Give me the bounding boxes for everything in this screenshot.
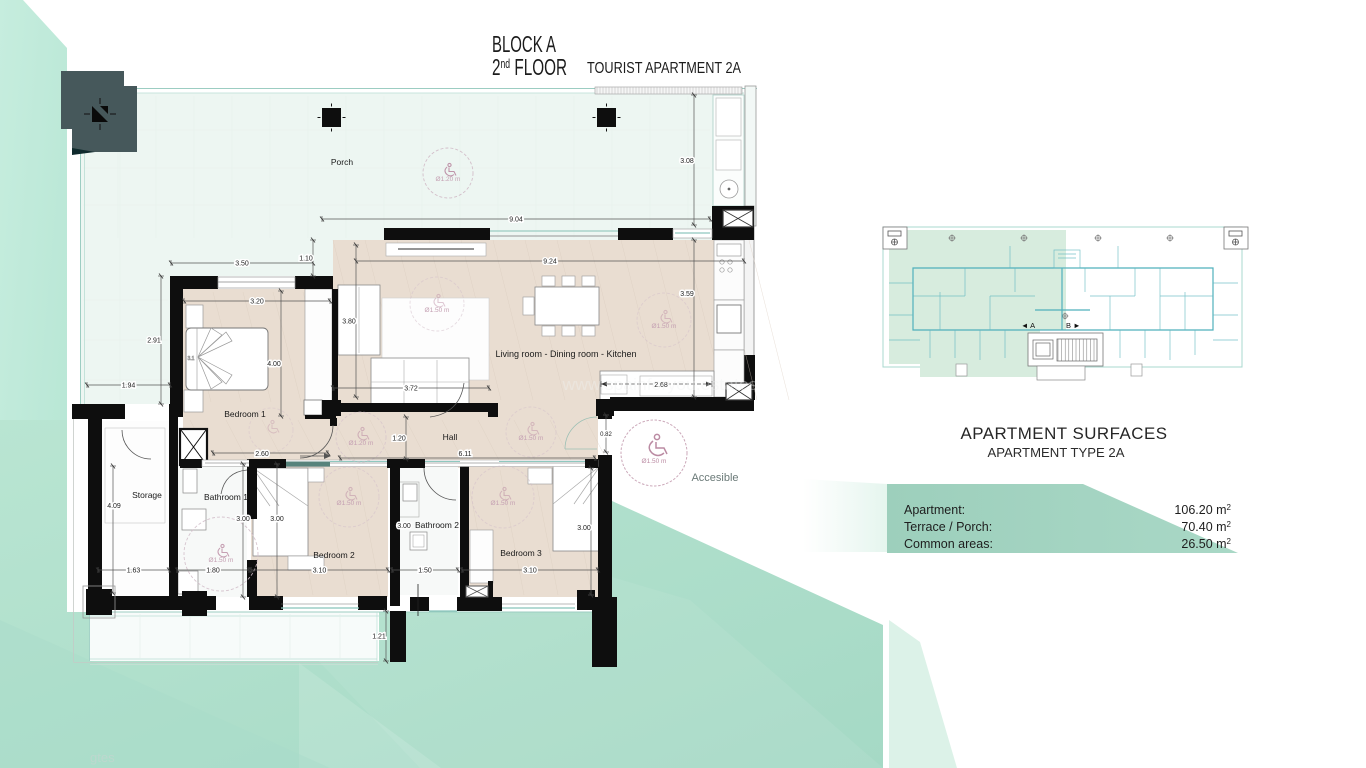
svg-text:Ø1.50 m: Ø1.50 m (209, 557, 234, 564)
svg-text:3.50: 3.50 (235, 261, 249, 268)
svg-text:4.09: 4.09 (107, 503, 121, 510)
svg-text:9.24: 9.24 (543, 259, 557, 266)
svg-text:1.21: 1.21 (372, 634, 386, 641)
svg-text:1.20: 1.20 (392, 436, 406, 443)
svg-text:4.00: 4.00 (267, 361, 281, 368)
svg-text:Porch: Porch (331, 157, 353, 167)
svg-text:3.00: 3.00 (236, 516, 250, 523)
svg-text:Storage: Storage (132, 490, 162, 500)
svg-text:Ø1.50 m: Ø1.50 m (491, 500, 516, 507)
svg-text:1.80: 1.80 (206, 568, 220, 575)
svg-text:Hall: Hall (443, 432, 458, 442)
svg-text:3.72: 3.72 (404, 386, 418, 393)
svg-text:Bedroom 1: Bedroom 1 (224, 409, 266, 419)
svg-text:1.94: 1.94 (122, 383, 136, 390)
svg-text:gtes: gtes (90, 750, 115, 765)
svg-text:Ø1.20 m: Ø1.20 m (349, 440, 374, 447)
svg-text:2.60: 2.60 (255, 451, 269, 458)
svg-text:3.08: 3.08 (680, 158, 694, 165)
svg-text:2.91: 2.91 (147, 338, 161, 345)
svg-text:Ø1.50 m: Ø1.50 m (642, 458, 667, 465)
svg-text:6.11: 6.11 (458, 451, 471, 458)
svg-text:1.10: 1.10 (299, 256, 313, 263)
svg-text:TOURIST APARTMENT 2A: TOURIST APARTMENT 2A (587, 60, 742, 77)
svg-text:0.82: 0.82 (600, 432, 612, 438)
svg-text:3.00: 3.00 (577, 525, 591, 532)
svg-text:3.10: 3.10 (313, 568, 327, 575)
svg-text:3.00: 3.00 (397, 523, 411, 530)
svg-text:Living room - Dining room - Ki: Living room - Dining room - Kitchen (495, 349, 636, 359)
svg-text:9.04: 9.04 (509, 217, 523, 224)
svg-text:Ø1.50 m: Ø1.50 m (337, 500, 362, 507)
svg-text:Bedroom 3: Bedroom 3 (500, 548, 542, 558)
svg-text:Ø1.50 m: Ø1.50 m (519, 435, 544, 442)
svg-text:Bathroom 1: Bathroom 1 (204, 492, 248, 502)
svg-text:APARTMENT SURFACES: APARTMENT SURFACES (961, 424, 1168, 443)
svg-text:Ø1.50 m: Ø1.50 m (652, 323, 677, 330)
svg-text:Bathroom 2: Bathroom 2 (415, 520, 459, 530)
svg-text:3.59: 3.59 (680, 291, 694, 298)
svg-text:Apartment:: Apartment: (904, 503, 965, 517)
svg-text:◄ A: ◄ A (1021, 321, 1035, 330)
svg-text:Ø1.50 m: Ø1.50 m (425, 307, 450, 314)
svg-text:www.spainforyou.estates: www.spainforyou.estates (561, 375, 757, 394)
svg-text:Accesible: Accesible (691, 472, 738, 484)
svg-text:70.40 m2: 70.40 m2 (1181, 520, 1231, 534)
svg-text:B ►: B ► (1066, 321, 1081, 330)
svg-text:Common areas:: Common areas: (904, 537, 993, 551)
svg-text:26.50 m2: 26.50 m2 (1181, 537, 1231, 551)
svg-text:3.80: 3.80 (342, 319, 356, 326)
svg-text:Terrace / Porch:: Terrace / Porch: (904, 520, 992, 534)
svg-text:3.1: 3.1 (188, 356, 195, 362)
svg-text:1.63: 1.63 (127, 568, 141, 575)
svg-text:1.50: 1.50 (418, 568, 432, 575)
svg-text:3.00: 3.00 (270, 516, 284, 523)
svg-text:106.20 m2: 106.20 m2 (1174, 503, 1231, 517)
svg-text:3.10: 3.10 (523, 568, 537, 575)
svg-text:3.20: 3.20 (250, 299, 264, 306)
svg-text:APARTMENT TYPE 2A: APARTMENT TYPE 2A (988, 446, 1126, 460)
svg-text:Ø1.20 m: Ø1.20 m (436, 176, 461, 183)
svg-text:Bedroom 2: Bedroom 2 (313, 550, 355, 560)
